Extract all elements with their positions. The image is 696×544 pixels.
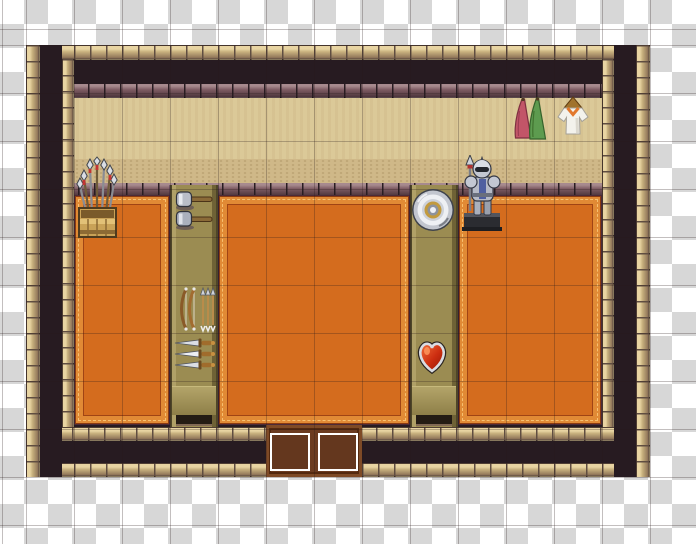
door-event-right[interactable] — [318, 433, 358, 471]
map-editor-canvas — [0, 0, 696, 544]
event-layer — [0, 0, 696, 544]
door-event-left[interactable] — [270, 433, 310, 471]
